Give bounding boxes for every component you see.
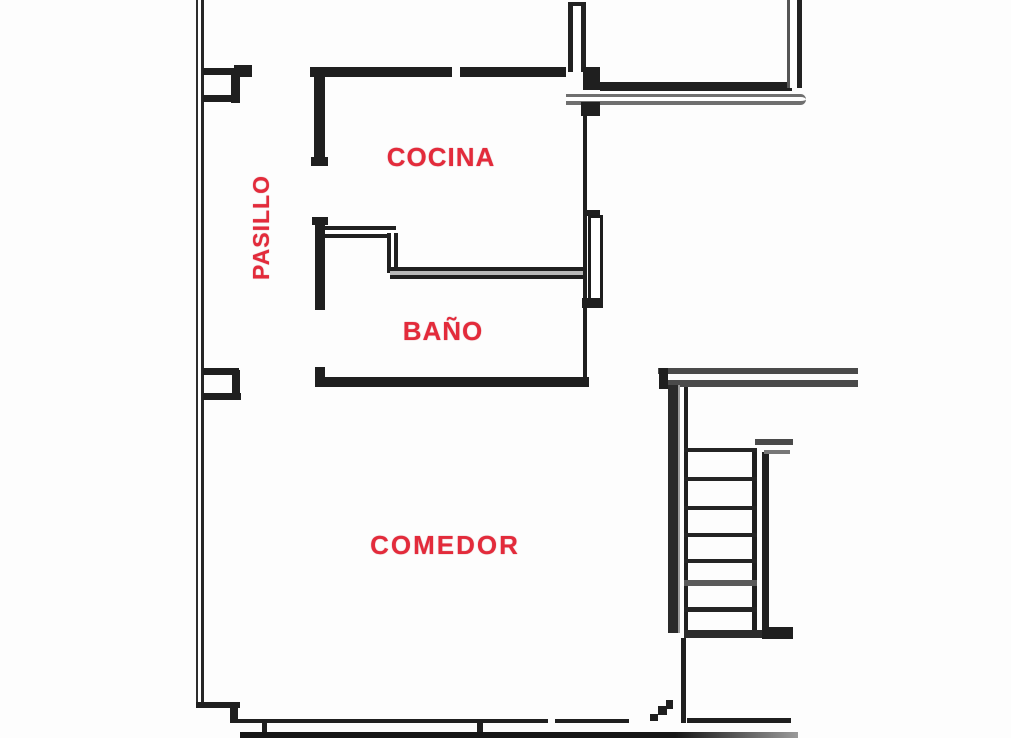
wall-top-east (600, 82, 792, 91)
wall-east-thin (583, 116, 587, 382)
stair-right-rail-b (762, 452, 769, 638)
wall-stair-hall-lower (681, 638, 686, 723)
stair-top-hook (659, 368, 668, 389)
stair-left-wall (668, 385, 680, 633)
stair-top-line-1 (658, 368, 858, 374)
stair-left-rail (684, 387, 688, 638)
wall-bano-left-cap (312, 217, 328, 225)
wall-bano-bottom (315, 377, 589, 387)
stair-tread (684, 477, 757, 481)
stair-tread (684, 607, 757, 612)
wall-zigzag-3 (666, 700, 673, 709)
stair-top-right-stub (755, 439, 793, 445)
room-label-bano: BAÑO (343, 315, 543, 347)
wall-comedor-south-a (237, 719, 548, 723)
wall-cocina-left (314, 67, 325, 165)
wall-bano-top-stub (318, 226, 396, 238)
wall-zigzag-1 (650, 714, 658, 721)
wall-top-notch (583, 67, 600, 90)
stair-top-right-stub-2 (764, 450, 790, 454)
pillar-top-bottom (203, 95, 240, 102)
room-label-cocina: COCINA (341, 141, 541, 173)
wall-cocina-top-a (310, 67, 452, 77)
ledge-gray-line (566, 94, 806, 105)
door-leaf-cap (582, 298, 603, 308)
door-leaf (588, 215, 603, 305)
floor-plan: PASILLO COCINA BAÑO COMEDOR (0, 0, 1011, 738)
wall-post-square (581, 102, 600, 116)
pillar-mid-bottom (203, 393, 241, 400)
wall-top-stub (568, 2, 586, 72)
room-label-comedor: COMEDOR (330, 529, 560, 561)
wall-left-exterior (196, 0, 204, 708)
stair-tread (684, 448, 757, 452)
room-label-pasillo: PASILLO (239, 176, 283, 278)
wall-cocina-left-cap (311, 157, 328, 166)
stair-bottom-cap (762, 627, 793, 639)
stair-top-line-2 (668, 380, 858, 387)
wall-comedor-south-right (687, 718, 791, 723)
wall-bano-left (315, 217, 325, 310)
wall-cocina-top-b (460, 67, 566, 77)
wall-comedor-south-b (555, 719, 629, 723)
wall-bottom-bar (240, 732, 798, 738)
stair-tread (684, 533, 757, 537)
stair-tread (684, 506, 757, 510)
wall-bano-top-long (390, 267, 583, 279)
wall-top-right-vertical (787, 0, 802, 88)
stair-tread (684, 580, 757, 586)
stair-tread (684, 559, 757, 563)
wall-bano-bottom-stub (315, 367, 325, 379)
